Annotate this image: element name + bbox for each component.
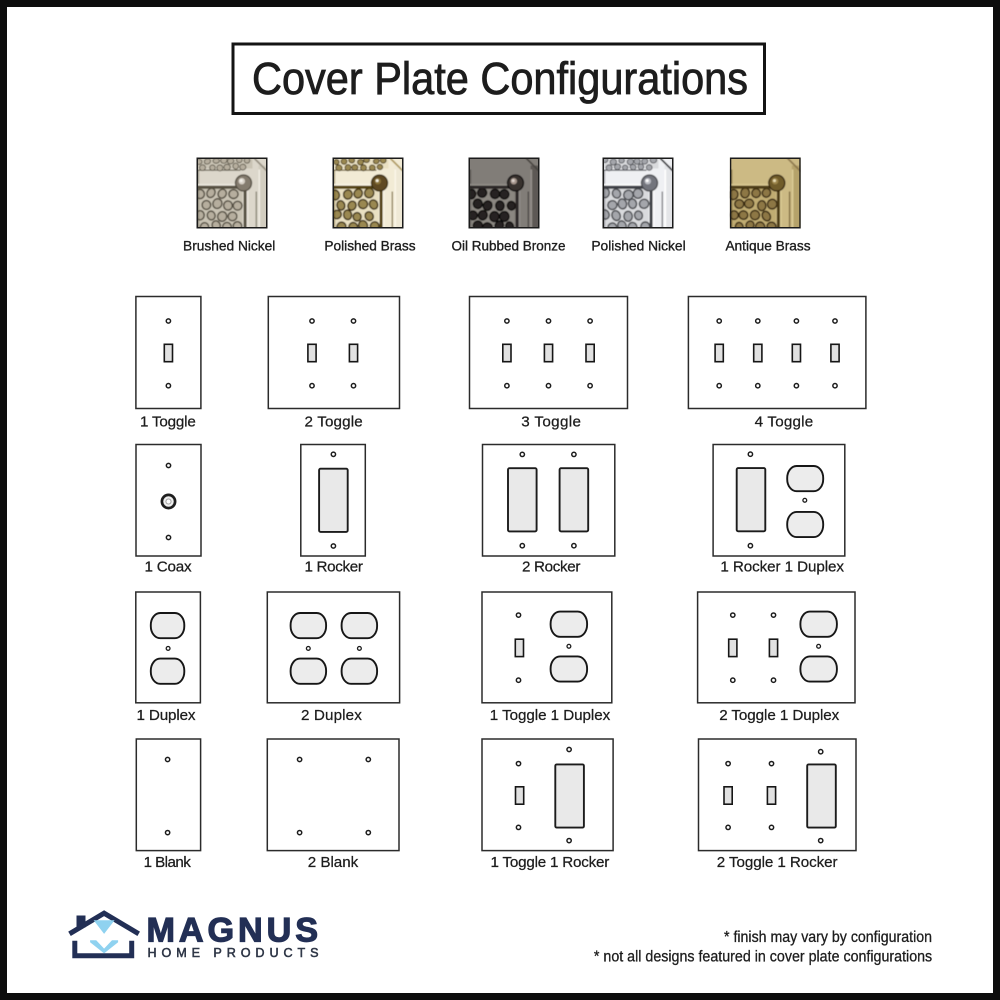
svg-text:2 Duplex: 2 Duplex — [301, 707, 362, 724]
svg-text:2 Blank: 2 Blank — [308, 854, 359, 871]
svg-text:1 Toggle 1 Duplex: 1 Toggle 1 Duplex — [490, 707, 611, 724]
svg-text:Brushed Nickel: Brushed Nickel — [183, 238, 275, 254]
svg-text:2 Toggle: 2 Toggle — [305, 413, 363, 430]
svg-text:2 Toggle 1 Duplex: 2 Toggle 1 Duplex — [719, 707, 839, 724]
svg-text:1 Toggle: 1 Toggle — [140, 413, 196, 430]
svg-text:1 Coax: 1 Coax — [144, 558, 192, 575]
svg-text:1 Blank: 1 Blank — [144, 854, 192, 871]
svg-text:1 Rocker 1 Duplex: 1 Rocker 1 Duplex — [720, 558, 844, 575]
svg-text:3 Toggle: 3 Toggle — [521, 413, 581, 430]
svg-text:1 Duplex: 1 Duplex — [137, 707, 196, 724]
svg-text:Polished Nickel: Polished Nickel — [591, 238, 685, 254]
svg-text:4 Toggle: 4 Toggle — [755, 413, 814, 430]
svg-text:2 Toggle 1 Rocker: 2 Toggle 1 Rocker — [717, 854, 838, 871]
svg-text:Cover Plate Configurations: Cover Plate Configurations — [252, 53, 748, 104]
svg-text:Antique Brass: Antique Brass — [725, 238, 810, 254]
svg-text:Polished Brass: Polished Brass — [324, 238, 415, 254]
svg-text:2 Rocker: 2 Rocker — [522, 558, 580, 575]
svg-text:1 Toggle 1 Rocker: 1 Toggle 1 Rocker — [491, 854, 610, 871]
svg-text:Oil Rubbed Bronze: Oil Rubbed Bronze — [452, 238, 566, 254]
svg-text:* not all designs featured in: * not all designs featured in cover plat… — [594, 949, 932, 966]
svg-text:* finish may vary by configura: * finish may vary by configuration — [724, 929, 932, 946]
svg-text:1 Rocker: 1 Rocker — [304, 558, 363, 575]
